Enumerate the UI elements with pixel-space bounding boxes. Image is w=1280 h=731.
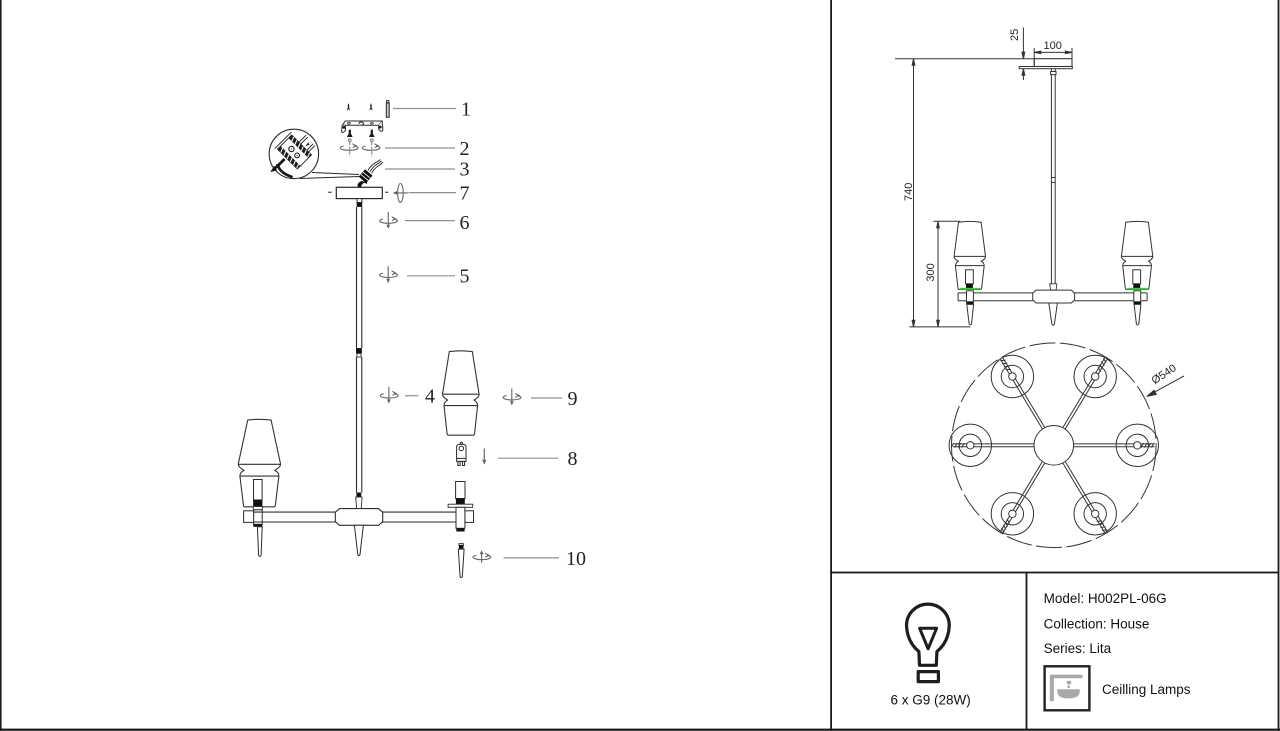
svg-text:6 x G9 (28W): 6 x G9 (28W) (891, 693, 971, 708)
svg-text:8: 8 (568, 448, 578, 470)
svg-text:4: 4 (425, 386, 435, 408)
svg-text:2: 2 (460, 138, 470, 160)
svg-text:Collection: House: Collection: House (1044, 617, 1150, 632)
svg-text:740: 740 (903, 183, 915, 201)
svg-text:300: 300 (925, 263, 937, 281)
svg-text:Series: Lita: Series: Lita (1044, 641, 1112, 656)
svg-text:9: 9 (568, 388, 578, 410)
svg-text:5: 5 (460, 266, 470, 288)
svg-text:Ceilling Lamps: Ceilling Lamps (1102, 682, 1191, 697)
svg-text:3: 3 (460, 159, 470, 181)
svg-text:25: 25 (1009, 29, 1021, 41)
svg-text:Model: H002PL-06G: Model: H002PL-06G (1044, 591, 1167, 606)
svg-text:6: 6 (460, 212, 470, 234)
svg-text:1: 1 (461, 99, 471, 121)
svg-text:7: 7 (460, 183, 470, 205)
svg-text:10: 10 (566, 548, 586, 570)
svg-text:100: 100 (1044, 40, 1062, 52)
